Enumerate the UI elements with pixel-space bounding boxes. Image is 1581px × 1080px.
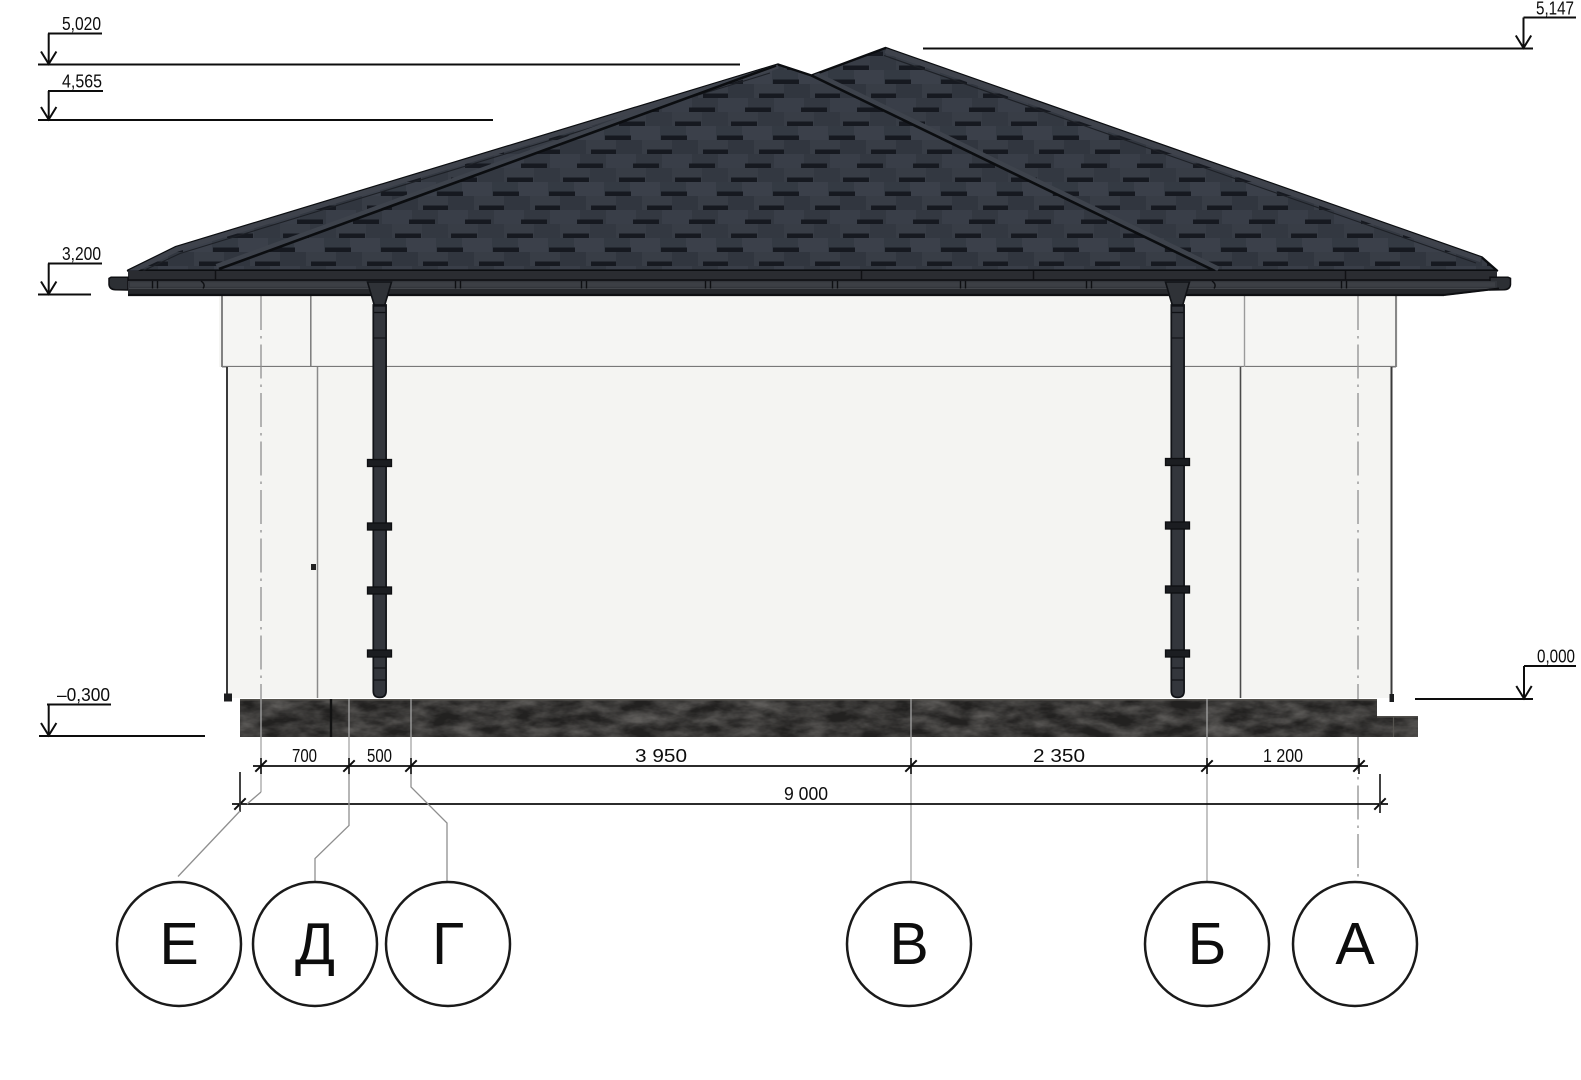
svg-text:500: 500 xyxy=(367,745,392,766)
svg-text:700: 700 xyxy=(292,745,317,766)
svg-text:0,000: 0,000 xyxy=(1537,646,1575,667)
svg-text:Г: Г xyxy=(432,911,464,977)
svg-text:4,565: 4,565 xyxy=(62,71,102,92)
svg-text:А: А xyxy=(1335,911,1375,977)
svg-text:3 950: 3 950 xyxy=(635,745,687,766)
svg-text:2 350: 2 350 xyxy=(1033,745,1085,766)
svg-text:Е: Е xyxy=(159,911,198,977)
svg-text:–0,300: –0,300 xyxy=(57,684,110,705)
svg-text:В: В xyxy=(889,911,928,977)
svg-text:9 000: 9 000 xyxy=(784,783,828,804)
svg-text:3,200: 3,200 xyxy=(62,243,101,264)
svg-text:Д: Д xyxy=(295,911,335,977)
svg-text:5,147: 5,147 xyxy=(1536,0,1574,19)
svg-text:Б: Б xyxy=(1188,911,1227,977)
svg-text:5,020: 5,020 xyxy=(62,13,101,34)
svg-text:1 200: 1 200 xyxy=(1263,745,1303,766)
